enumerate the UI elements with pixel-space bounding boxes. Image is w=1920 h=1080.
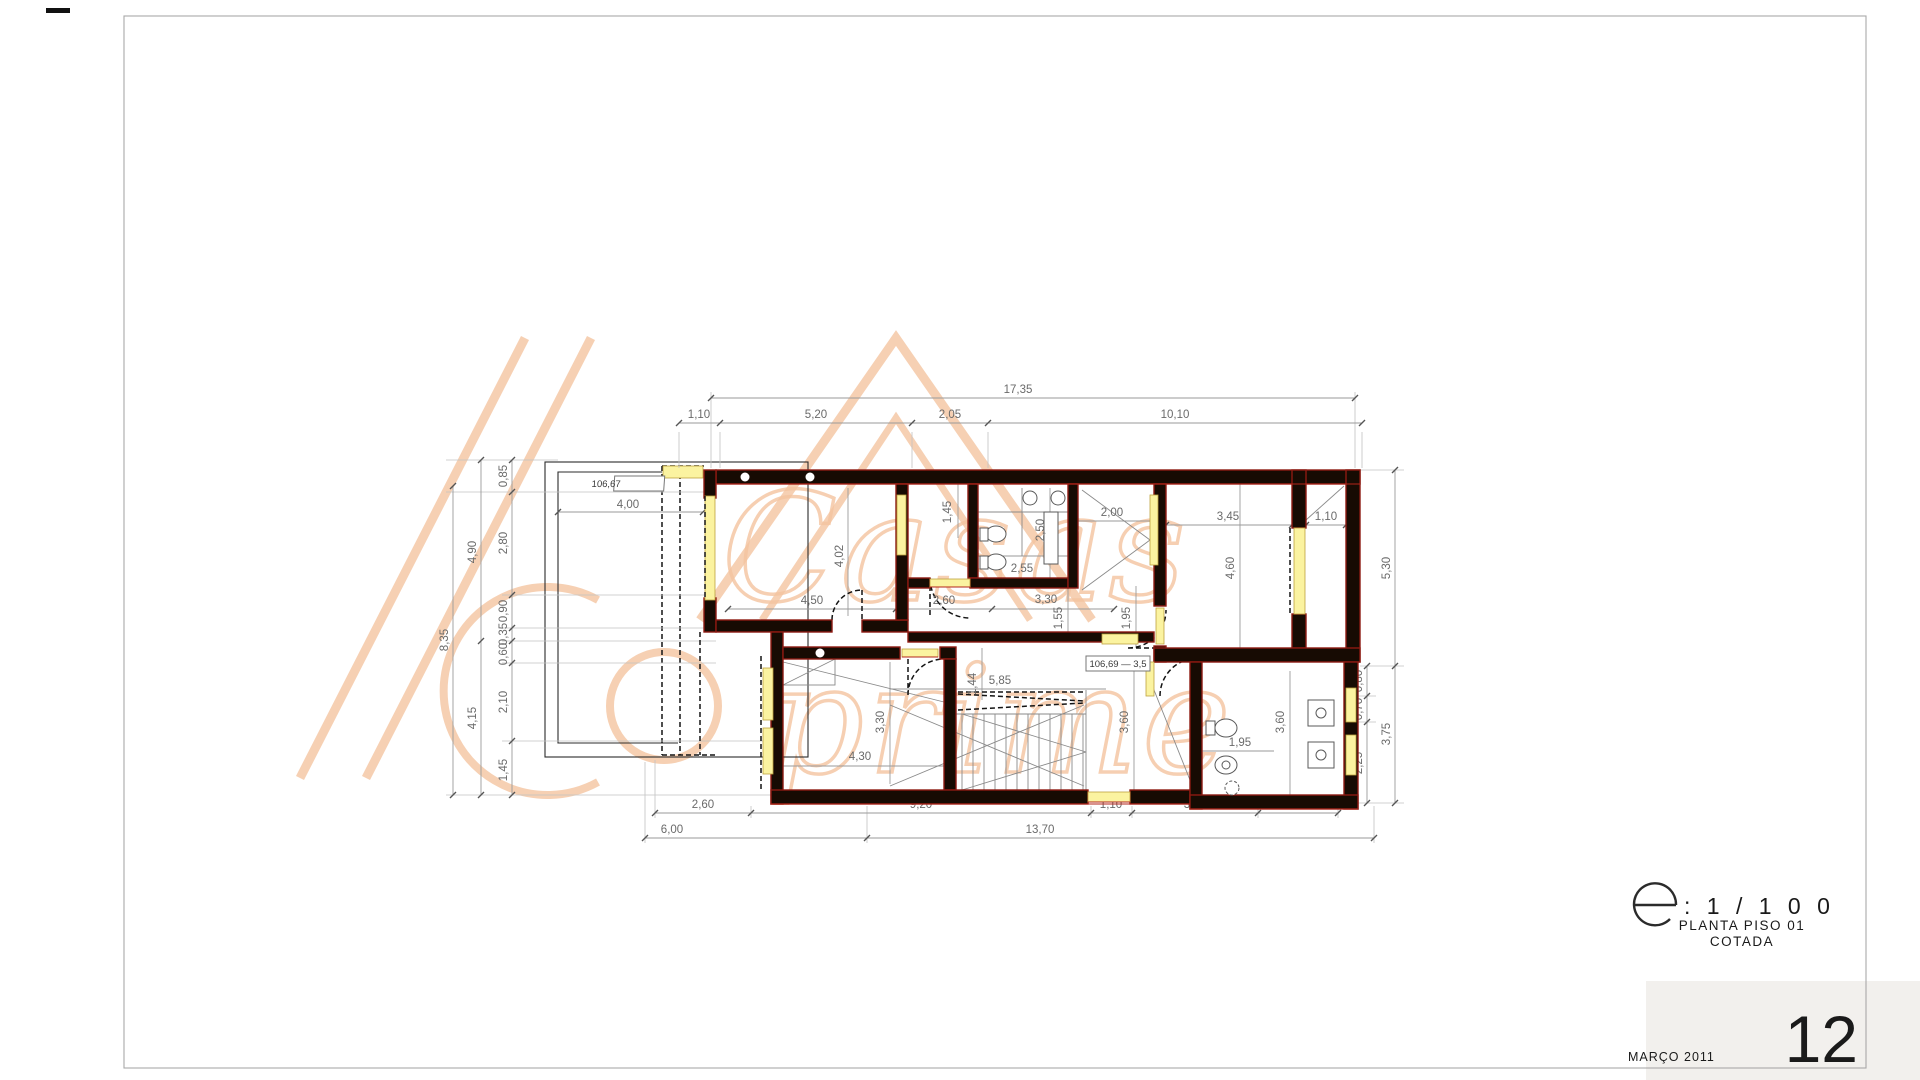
level-label-lower: 106,69 — 3,5 xyxy=(1089,659,1146,670)
page-number: 12 xyxy=(1785,1002,1858,1076)
dim-label: 1,10 xyxy=(1315,511,1337,523)
level-label-upper: 106,67 xyxy=(591,479,621,490)
dim-label: 3,30 xyxy=(875,711,887,733)
dim-label: 2,10 xyxy=(498,691,510,713)
dim-label: 4,02 xyxy=(834,545,846,567)
dim-label: 1,44 xyxy=(967,672,979,695)
scale-value: : 1 / 1 0 0 xyxy=(1684,893,1835,919)
dim-label: 0,60 xyxy=(498,643,510,665)
date-label: MARÇO 2011 xyxy=(1628,1050,1715,1064)
dim-label: 13,70 xyxy=(1026,824,1055,836)
dim-label: 2,80 xyxy=(498,532,510,554)
dim-label: 1,95 xyxy=(1229,737,1251,749)
dim-label: 17,35 xyxy=(1004,384,1033,396)
dim-label: 6,00 xyxy=(661,824,683,836)
dim-label: 0,35 xyxy=(498,623,510,645)
dim-label: 5,85 xyxy=(989,675,1011,687)
dim-label: 4,50 xyxy=(801,595,823,607)
registration-mark xyxy=(46,8,70,13)
floor-plan-canvas: Casas prime 17,35 1,10 5,20 2,05 10,10 xyxy=(0,0,1920,1080)
dim-label: 5,30 xyxy=(1381,557,1393,579)
dim-label: 1,95 xyxy=(1121,607,1133,629)
dim-label: 2,60 xyxy=(933,595,955,607)
dim-label: 4,30 xyxy=(849,751,871,763)
dim-label: 10,10 xyxy=(1161,409,1190,421)
dim-label: 1,45 xyxy=(498,759,510,781)
dim-label: 1,55 xyxy=(1053,607,1065,629)
scale-e-glyph xyxy=(1634,883,1676,925)
dim-label: 2,05 xyxy=(939,409,961,421)
dim-label: 1,45 xyxy=(942,501,954,523)
drawing-title-line2: COTADA xyxy=(1710,934,1774,949)
dim-label: 4,00 xyxy=(617,499,639,511)
dim-label: 0,90 xyxy=(498,600,510,622)
dim-label: 4,15 xyxy=(467,707,479,729)
dim-label: 2,50 xyxy=(1035,519,1047,541)
dim-label: 0,85 xyxy=(498,465,510,487)
dim-label: 2,60 xyxy=(692,799,714,811)
dim-label: 4,60 xyxy=(1225,557,1237,579)
watermark-word-1: Casas xyxy=(722,462,1190,636)
dim-label: 3,75 xyxy=(1381,723,1393,745)
dim-label: 2,00 xyxy=(1101,507,1123,519)
dim-label: 2,55 xyxy=(1011,563,1033,575)
dim-label: 3,30 xyxy=(1035,594,1057,606)
dim-label: 1,10 xyxy=(688,409,710,421)
drawing-title-line1: PLANTA PISO 01 xyxy=(1679,918,1806,933)
dim-label: 3,60 xyxy=(1119,711,1131,733)
dim-label: 8,35 xyxy=(439,629,451,651)
dim-label: 5,20 xyxy=(805,409,827,421)
drawing-sheet: { "sheet": { "scale_letter": "e", "scale… xyxy=(0,0,1920,1080)
titleblock-panel xyxy=(1646,981,1920,1080)
dim-label: 4,90 xyxy=(467,541,479,563)
dim-label: 3,60 xyxy=(1275,711,1287,733)
dim-label: 3,45 xyxy=(1217,511,1239,523)
